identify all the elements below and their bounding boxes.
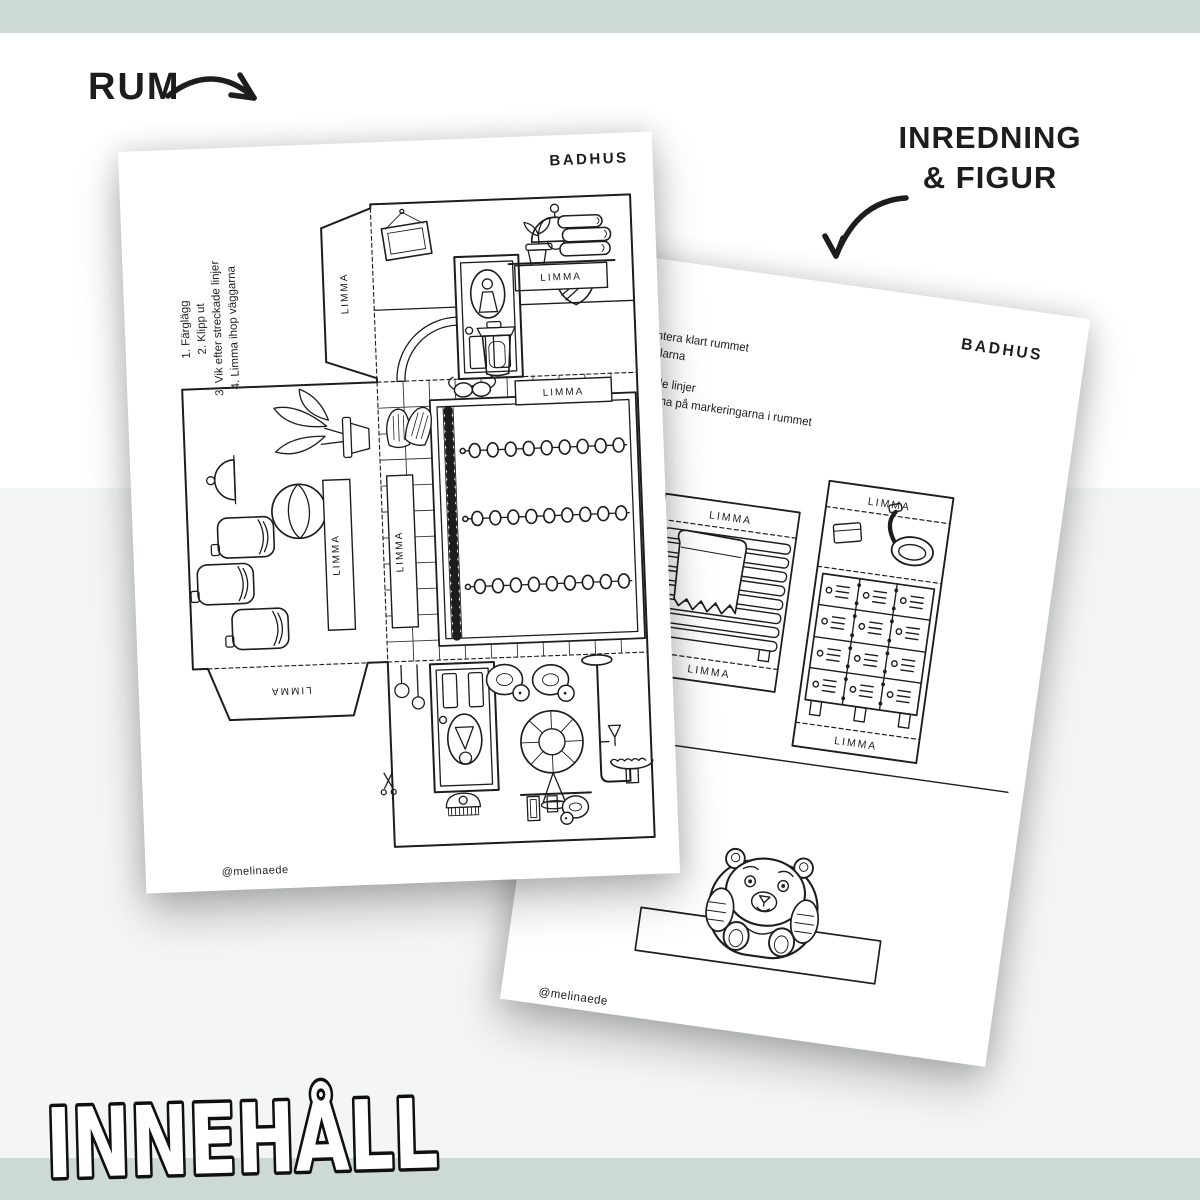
glue-label: LIMMA [394, 530, 407, 572]
faucet-knobs-icon [394, 665, 425, 710]
watermark: @melinaede [222, 864, 289, 879]
back-wall-illustration: LIMMA [370, 198, 637, 382]
instruction-line-2: 2. Klipp ut [195, 302, 209, 354]
room-template-art: BADHUS 1. Färglägg 2. Klipp ut 3. Vik ef… [118, 132, 680, 894]
instruction-line-1: 1. Färglägg [179, 300, 193, 359]
innehall-title: INNEHÅLL [45, 1077, 440, 1200]
glue-label: LIMMA [687, 663, 732, 681]
scissors-icon [381, 773, 397, 795]
lounge-chairs-icon [188, 516, 289, 652]
top-green-band [0, 0, 1200, 33]
beach-ball-icon [271, 483, 327, 539]
room-instructions: 1. Färglägg 2. Klipp ut 3. Vik efter str… [177, 260, 242, 398]
shower-icon [582, 653, 654, 784]
picture-frame-icon [379, 206, 432, 261]
room-page: BADHUS 1. Färglägg 2. Klipp ut 3. Vik ef… [118, 132, 680, 894]
sink-icon [611, 758, 654, 784]
door-swing-arc [395, 317, 459, 381]
instruction-line-3: 3. Vik efter streckade linjer [209, 260, 226, 396]
innehall-heading: INNEHÅLL [44, 1072, 464, 1200]
glue-tab-label-bottom: LIMMA [270, 684, 312, 697]
glue-label: LIMMA [330, 534, 343, 576]
doormat-brush-icon [446, 793, 481, 816]
front-wall-illustration [394, 653, 655, 831]
mens-door-icon [392, 255, 523, 382]
plant-icon [273, 387, 370, 461]
side-wall-illustration: LIMMA [183, 387, 377, 652]
furniture-page-title: BADHUS [960, 336, 1044, 365]
locker-illustration: LIMMA [792, 481, 953, 763]
towel-stack-icon [558, 214, 611, 256]
rum-arrow-icon [162, 68, 272, 123]
glue-label: LIMMA [833, 735, 878, 753]
watermark: @melinaede [538, 985, 609, 1008]
flippers-icon [386, 404, 437, 450]
glue-tab-label: LIMMA [339, 272, 352, 314]
soap-icon [833, 523, 861, 543]
glue-label: LIMMA [543, 386, 585, 399]
glue-label: LIMMA [708, 509, 753, 527]
inredning-arrow-icon [818, 192, 913, 272]
swim-float-icons [486, 662, 574, 704]
room-page-title: BADHUS [549, 149, 629, 169]
pool-illustration [430, 392, 645, 646]
promo-canvas: BADHUS h montera klart rummet 3D-delarna… [0, 0, 1200, 1200]
inredning-label-line1: INREDNING [855, 118, 1125, 158]
inredning-annotation: INREDNING & FIGUR [855, 118, 1125, 198]
wall-lamp-icon [206, 456, 236, 505]
instruction-line-4: 4. Limma ihop väggarna [225, 265, 242, 389]
glue-label: LIMMA [540, 271, 582, 284]
